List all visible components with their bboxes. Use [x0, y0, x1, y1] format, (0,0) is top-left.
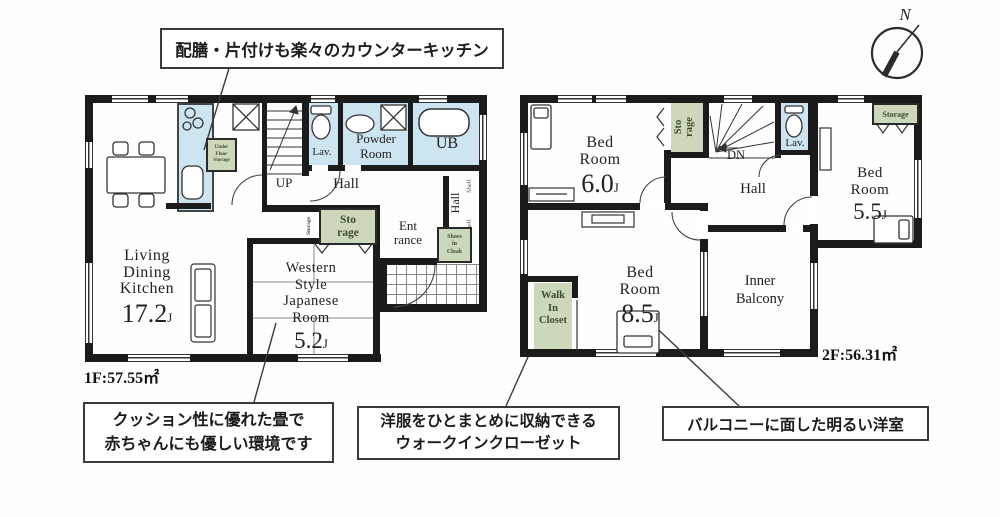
window	[596, 95, 626, 103]
window	[700, 252, 708, 316]
bed-icon-6j	[531, 105, 551, 149]
window	[724, 95, 752, 103]
door-opening	[664, 103, 671, 150]
room-name: Western Style Japanese Room	[283, 260, 339, 326]
room-label-hall-entrance: Hall	[449, 181, 463, 225]
window	[520, 133, 528, 185]
room-label-lav-2f: Lav.	[779, 138, 811, 150]
room-label-wic: Walk In Closet	[534, 290, 572, 328]
room-size: 17.2	[122, 299, 168, 328]
window	[558, 95, 592, 103]
room-size-unit: J	[167, 310, 172, 325]
storage-side-label: Storage	[307, 208, 317, 244]
room-label-bed6: Bed Room 6.0J	[560, 118, 640, 214]
window	[596, 349, 656, 357]
storage-stairs-label: Sto rage	[674, 103, 700, 151]
room-label-lav-1f: Lav.	[303, 147, 341, 159]
room-name: Bed Room	[619, 264, 660, 298]
room-size-unit: J	[654, 310, 659, 325]
door-opening	[640, 203, 665, 210]
floorplan-sheet: 配膳・片付けも楽々のカウンターキッチン クッション性に優れた畳で 赤ちゃんにも優…	[0, 0, 1000, 517]
entrance-porch-tiles	[387, 264, 479, 304]
room-size: 6.0	[581, 169, 614, 198]
wall	[262, 102, 267, 207]
wall	[166, 203, 211, 209]
wall	[664, 150, 671, 210]
room-label-bed85: Bed Room 8.5J	[600, 248, 680, 344]
room-size: 5.2	[294, 328, 323, 353]
annotation-walk-in-closet: 洋服をひとまとめに収納できる ウォークインクローゼット	[357, 406, 620, 460]
annotation-tatami: クッション性に優れた畳で 赤ちゃんにも優しい環境です	[83, 402, 334, 463]
door-opening	[810, 196, 818, 224]
room-size-unit: J	[882, 207, 887, 222]
window	[311, 95, 335, 103]
room-size: 8.5	[621, 299, 654, 328]
window	[419, 95, 447, 103]
window	[838, 95, 864, 103]
window	[810, 263, 818, 309]
door-opening	[345, 165, 361, 171]
wall	[781, 150, 808, 155]
compass-icon	[872, 25, 922, 78]
room-label-hall-1f: Hall	[316, 177, 376, 193]
door-opening	[700, 211, 708, 239]
room-label-hall-2f: Hall	[725, 182, 781, 198]
wall	[703, 103, 709, 158]
wall	[380, 258, 387, 312]
window	[85, 142, 93, 168]
room-label-entrance: Ent rance	[380, 219, 436, 246]
wall	[528, 276, 578, 282]
dining-table-icon	[107, 142, 165, 207]
room-label-powder: Powder Room	[342, 132, 410, 162]
storage-box-2f: Storage	[872, 103, 919, 125]
window	[128, 354, 190, 362]
floor1-area-label: 1F:57.55㎡	[84, 364, 159, 388]
compass-north-label: N	[893, 6, 917, 24]
folding-door-marks-2f	[657, 108, 664, 146]
window	[520, 240, 528, 274]
room-label-japanese: Western Style Japanese Room 5.2J	[248, 243, 374, 370]
wall	[572, 276, 578, 298]
room-label-up: UP	[264, 176, 304, 190]
window	[479, 115, 487, 160]
shelf-label: Shelf	[467, 166, 477, 206]
storage-box-1f: Sto rage	[319, 208, 377, 245]
room-label-inner-balcony: Inner Balcony	[715, 272, 805, 308]
window	[724, 349, 780, 357]
door-opening	[312, 165, 328, 171]
floor2-area-label: 2F:56.31㎡	[822, 341, 897, 365]
room-size: 5.5	[853, 199, 882, 224]
room-name: Bed Room	[851, 165, 890, 198]
annotation-balcony-room: バルコニーに面した明るい洋室	[662, 406, 929, 441]
room-size-unit: J	[614, 180, 619, 195]
wall	[378, 304, 487, 312]
room-name: Bed Room	[579, 134, 620, 168]
underfloor-storage-box: Under Floor Storage	[206, 138, 237, 172]
room-label-bed55: Bed Room 5.5J	[830, 148, 910, 241]
wall	[307, 165, 479, 171]
refrigerator-icon	[233, 104, 259, 130]
annotation-counter-kitchen: 配膳・片付けも楽々のカウンターキッチン	[160, 28, 504, 69]
shoes-in-cloak-box: Shoes in Cloak	[437, 227, 472, 263]
window	[112, 95, 148, 103]
room-label-ldk: Living Dining Kitchen 17.2J	[88, 231, 206, 344]
window	[914, 160, 922, 218]
wall	[380, 258, 437, 265]
room-label-ub: UB	[420, 136, 474, 153]
door-opening	[786, 225, 803, 232]
stairs-1f	[266, 106, 302, 174]
window	[156, 95, 188, 103]
room-name: Living Dining Kitchen	[120, 247, 174, 298]
room-size-unit: J	[323, 336, 328, 351]
room-label-dn: DN	[713, 149, 759, 162]
